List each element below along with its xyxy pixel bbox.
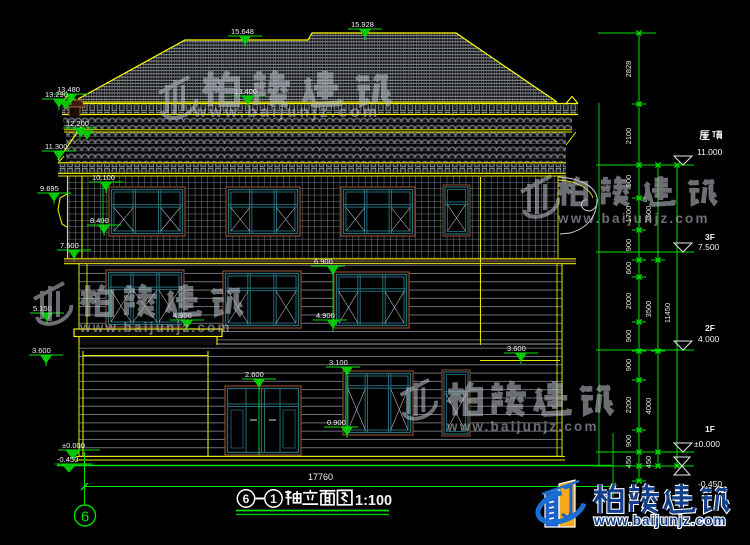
svg-text:600: 600 bbox=[624, 262, 633, 275]
svg-text:6: 6 bbox=[243, 492, 250, 506]
svg-text:2100: 2100 bbox=[624, 128, 633, 145]
svg-text:2.600: 2.600 bbox=[245, 370, 264, 379]
svg-text:4000: 4000 bbox=[644, 398, 653, 415]
svg-text:11.000: 11.000 bbox=[697, 147, 723, 157]
svg-text:8.400: 8.400 bbox=[90, 216, 109, 225]
svg-text:2200: 2200 bbox=[624, 397, 633, 414]
svg-text:www.baijunjz.com: www.baijunjz.com bbox=[79, 320, 232, 335]
svg-text:13.290: 13.290 bbox=[45, 90, 68, 99]
svg-text:3.100: 3.100 bbox=[329, 358, 348, 367]
svg-text:900: 900 bbox=[624, 239, 633, 252]
svg-text:17760: 17760 bbox=[308, 472, 333, 482]
svg-text:www.baijunjz.com: www.baijunjz.com bbox=[446, 419, 599, 434]
svg-text:7.500: 7.500 bbox=[60, 241, 79, 250]
svg-text:11.300: 11.300 bbox=[45, 142, 67, 151]
svg-text:www.baijunjz.com: www.baijunjz.com bbox=[193, 104, 380, 121]
svg-text:900: 900 bbox=[624, 330, 633, 343]
svg-text:15.648: 15.648 bbox=[231, 27, 254, 36]
svg-text:2F: 2F bbox=[705, 323, 715, 333]
svg-text:2000: 2000 bbox=[624, 293, 633, 310]
svg-text:3500: 3500 bbox=[644, 301, 653, 318]
svg-text:15.928: 15.928 bbox=[351, 20, 374, 29]
svg-text:2828: 2828 bbox=[624, 61, 633, 78]
svg-text:6.900: 6.900 bbox=[314, 257, 333, 266]
svg-text:1:100: 1:100 bbox=[355, 493, 392, 509]
svg-text:900: 900 bbox=[624, 435, 633, 448]
svg-text:3.600: 3.600 bbox=[507, 344, 526, 353]
svg-text:1: 1 bbox=[270, 492, 277, 506]
svg-text:900: 900 bbox=[624, 359, 633, 372]
svg-text:±0.000: ±0.000 bbox=[694, 439, 720, 449]
svg-text:4.000: 4.000 bbox=[698, 334, 720, 344]
svg-text:3F: 3F bbox=[705, 232, 715, 242]
svg-text:www.baijunjz.com: www.baijunjz.com bbox=[557, 211, 710, 226]
svg-text:±0.000: ±0.000 bbox=[62, 441, 85, 450]
svg-text:10.100: 10.100 bbox=[92, 173, 115, 182]
svg-text:4.900: 4.900 bbox=[316, 311, 335, 320]
svg-text:6: 6 bbox=[81, 509, 89, 526]
svg-text:9.695: 9.695 bbox=[40, 184, 59, 193]
svg-text:1F: 1F bbox=[705, 424, 715, 434]
svg-text:www.baijunjz.com: www.baijunjz.com bbox=[593, 513, 727, 528]
svg-text:7.500: 7.500 bbox=[698, 242, 720, 252]
svg-text:11450: 11450 bbox=[663, 303, 672, 323]
svg-text:0.900: 0.900 bbox=[327, 418, 346, 427]
svg-text:-0.450: -0.450 bbox=[57, 455, 78, 464]
svg-text:3.600: 3.600 bbox=[32, 346, 51, 355]
svg-text:12.200: 12.200 bbox=[66, 119, 89, 128]
